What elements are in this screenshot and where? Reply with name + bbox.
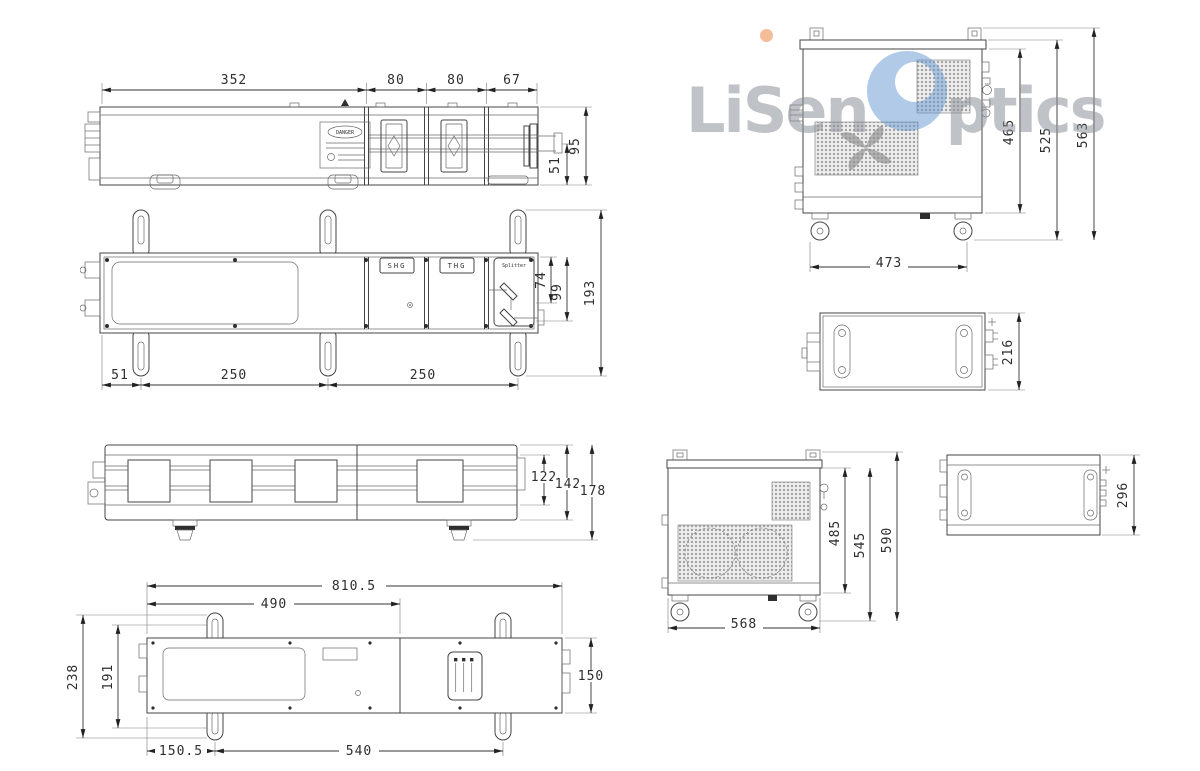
- casters: [811, 213, 972, 240]
- dim-590: 590: [880, 527, 895, 553]
- bottom-body: [139, 638, 570, 713]
- dim-95: 95: [568, 137, 583, 155]
- chiller-side-fittings: [982, 62, 992, 117]
- dim-238: 238: [66, 664, 81, 690]
- chiller-side-body: [790, 28, 986, 213]
- laser-head-top-view: SHG THG Splitter 74 99 193 51 250 250: [80, 200, 625, 400]
- drawing-sheet: DANGER 352 80 80 67 51 95: [0, 0, 1200, 771]
- dim-490: 490: [261, 597, 287, 612]
- dim-296: 296: [1116, 482, 1131, 508]
- head-side-body: [85, 99, 562, 189]
- dim-142: 142: [555, 477, 581, 492]
- dim-250b: 250: [410, 368, 436, 383]
- feet: [173, 520, 471, 540]
- laser-head-rail-view: 122 142 178: [80, 430, 620, 560]
- psu-side-dims: 296: [1102, 455, 1140, 535]
- dim-465: 465: [1002, 119, 1017, 145]
- dim-150: 150: [578, 669, 604, 684]
- dim-191: 191: [101, 664, 116, 690]
- shg-label: SHG: [388, 262, 407, 270]
- dim-80a: 80: [387, 73, 405, 88]
- thg-label: THG: [448, 262, 467, 270]
- dim-150-5: 150.5: [159, 744, 203, 759]
- logo-letter-l: L: [686, 81, 724, 141]
- dim-178: 178: [580, 484, 606, 499]
- dim-216: 216: [1001, 339, 1016, 365]
- psu-top-dims: 216: [988, 313, 1025, 390]
- dim-525: 525: [1039, 127, 1054, 153]
- dim-540: 540: [346, 744, 372, 759]
- dim-99: 99: [550, 283, 565, 301]
- dim-80b: 80: [447, 73, 465, 88]
- chiller-front-view: 485 545 590 568: [650, 440, 910, 640]
- rail-body: [88, 445, 525, 520]
- dim-250a: 250: [221, 368, 247, 383]
- laser-head-bottom-view: 810.5 490 238 191 150 150.5 540: [60, 580, 630, 771]
- dim-74: 74: [534, 271, 549, 289]
- logo-letter-i: i: [724, 81, 743, 141]
- chiller-side-view: 465 525 563 473: [780, 20, 1110, 280]
- chiller-side-vents: [815, 60, 970, 175]
- dim-51b: 51: [111, 368, 129, 383]
- dim-563: 563: [1076, 122, 1091, 148]
- dim-810-5: 810.5: [332, 580, 376, 594]
- dim-352: 352: [221, 73, 247, 88]
- dim-568: 568: [731, 617, 757, 632]
- psu-top-view: 216: [800, 300, 1040, 410]
- psu-top-body: [802, 313, 998, 390]
- dim-545: 545: [853, 532, 868, 558]
- rail-dims: 122 142 178: [473, 445, 607, 540]
- dim-51: 51: [548, 156, 563, 174]
- danger-label: DANGER: [320, 122, 370, 168]
- psu-side-view: 296: [930, 440, 1160, 550]
- chiller-front-vents: [678, 482, 810, 581]
- dim-473: 473: [876, 256, 902, 271]
- chiller-front-fittings: [820, 484, 828, 510]
- laser-head-side-view: DANGER 352 80 80 67 51 95: [80, 40, 620, 200]
- splitter-label: Splitter: [502, 263, 526, 269]
- psu-side-body: [940, 455, 1110, 535]
- danger-text: DANGER: [336, 130, 355, 136]
- dim-193: 193: [583, 280, 598, 306]
- dim-485: 485: [828, 520, 843, 546]
- logo-i-dot: [760, 29, 773, 42]
- dim-67: 67: [503, 73, 521, 88]
